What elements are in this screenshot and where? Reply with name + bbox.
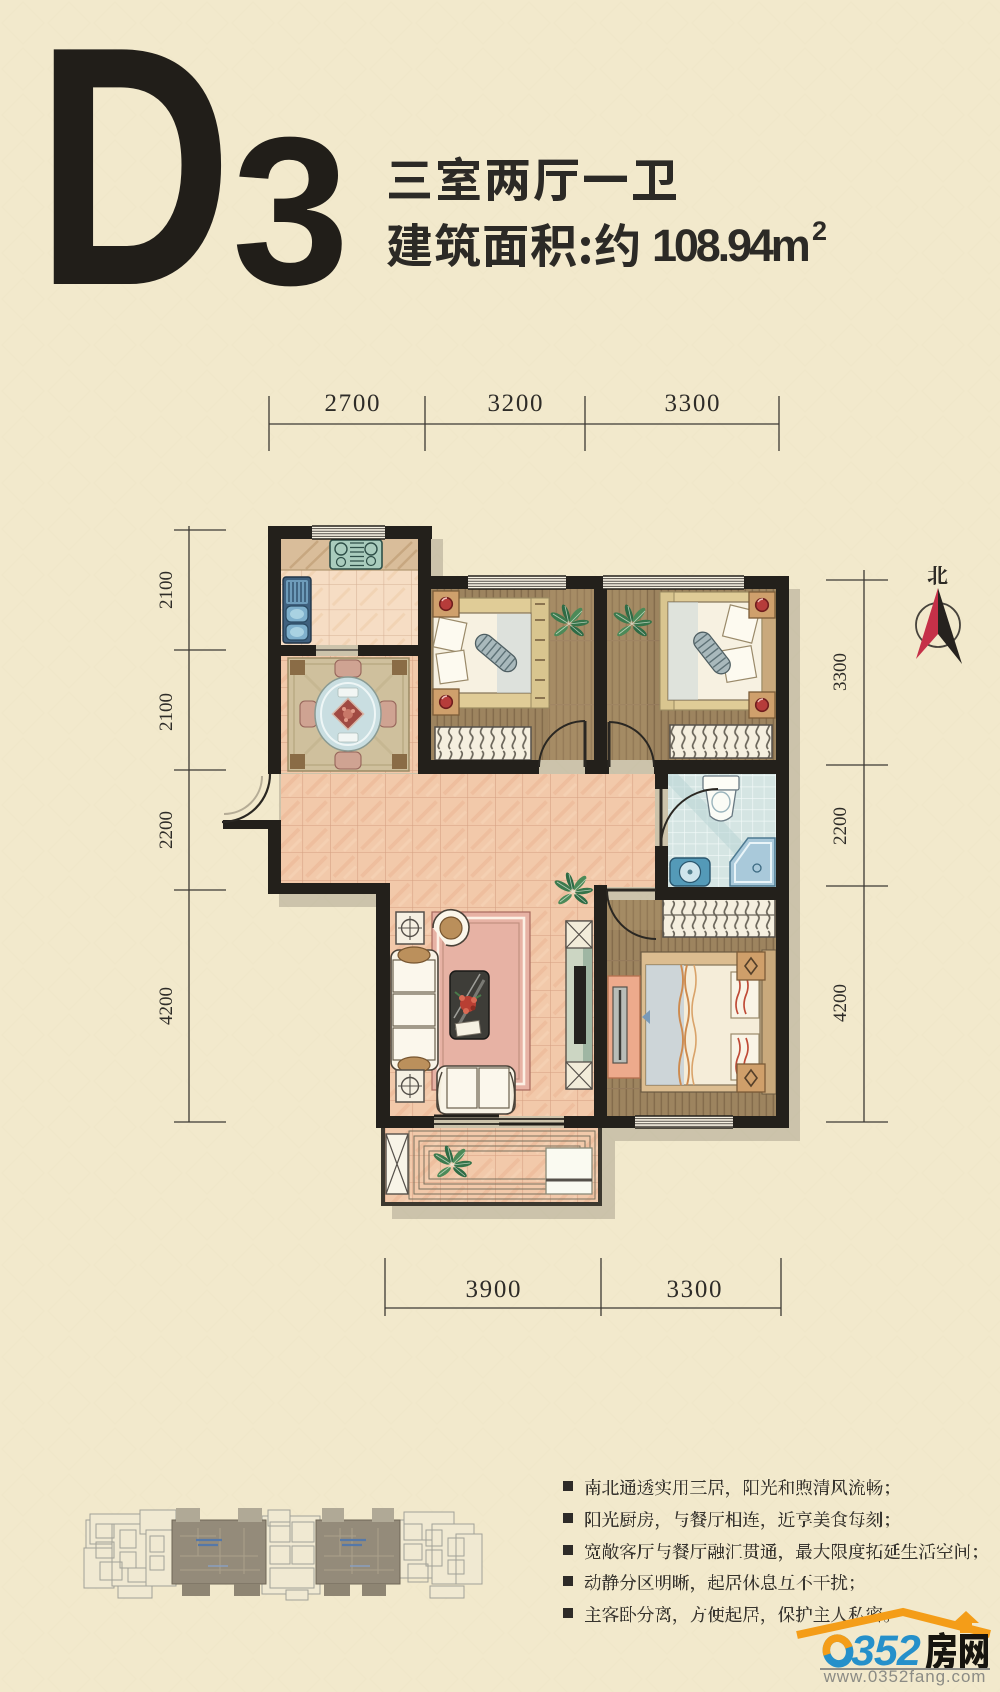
svg-text:4200: 4200 xyxy=(830,984,851,1022)
svg-text:2100: 2100 xyxy=(156,571,177,609)
svg-text:2100: 2100 xyxy=(156,693,177,731)
svg-text:3900: 3900 xyxy=(466,1276,521,1303)
svg-text:3: 3 xyxy=(232,93,349,329)
svg-text:3300: 3300 xyxy=(830,653,851,691)
svg-text:3300: 3300 xyxy=(667,1276,722,1303)
svg-text:D: D xyxy=(36,0,233,357)
svg-text:3200: 3200 xyxy=(488,390,543,417)
svg-text:3300: 3300 xyxy=(665,390,720,417)
svg-text:108.94m: 108.94m xyxy=(652,220,810,271)
svg-text:2200: 2200 xyxy=(156,811,177,849)
svg-text:4200: 4200 xyxy=(156,987,177,1025)
svg-text:2: 2 xyxy=(812,216,827,246)
svg-text:www.0352fang.com: www.0352fang.com xyxy=(823,1667,987,1686)
svg-text:2700: 2700 xyxy=(325,390,380,417)
svg-text:2200: 2200 xyxy=(830,807,851,845)
